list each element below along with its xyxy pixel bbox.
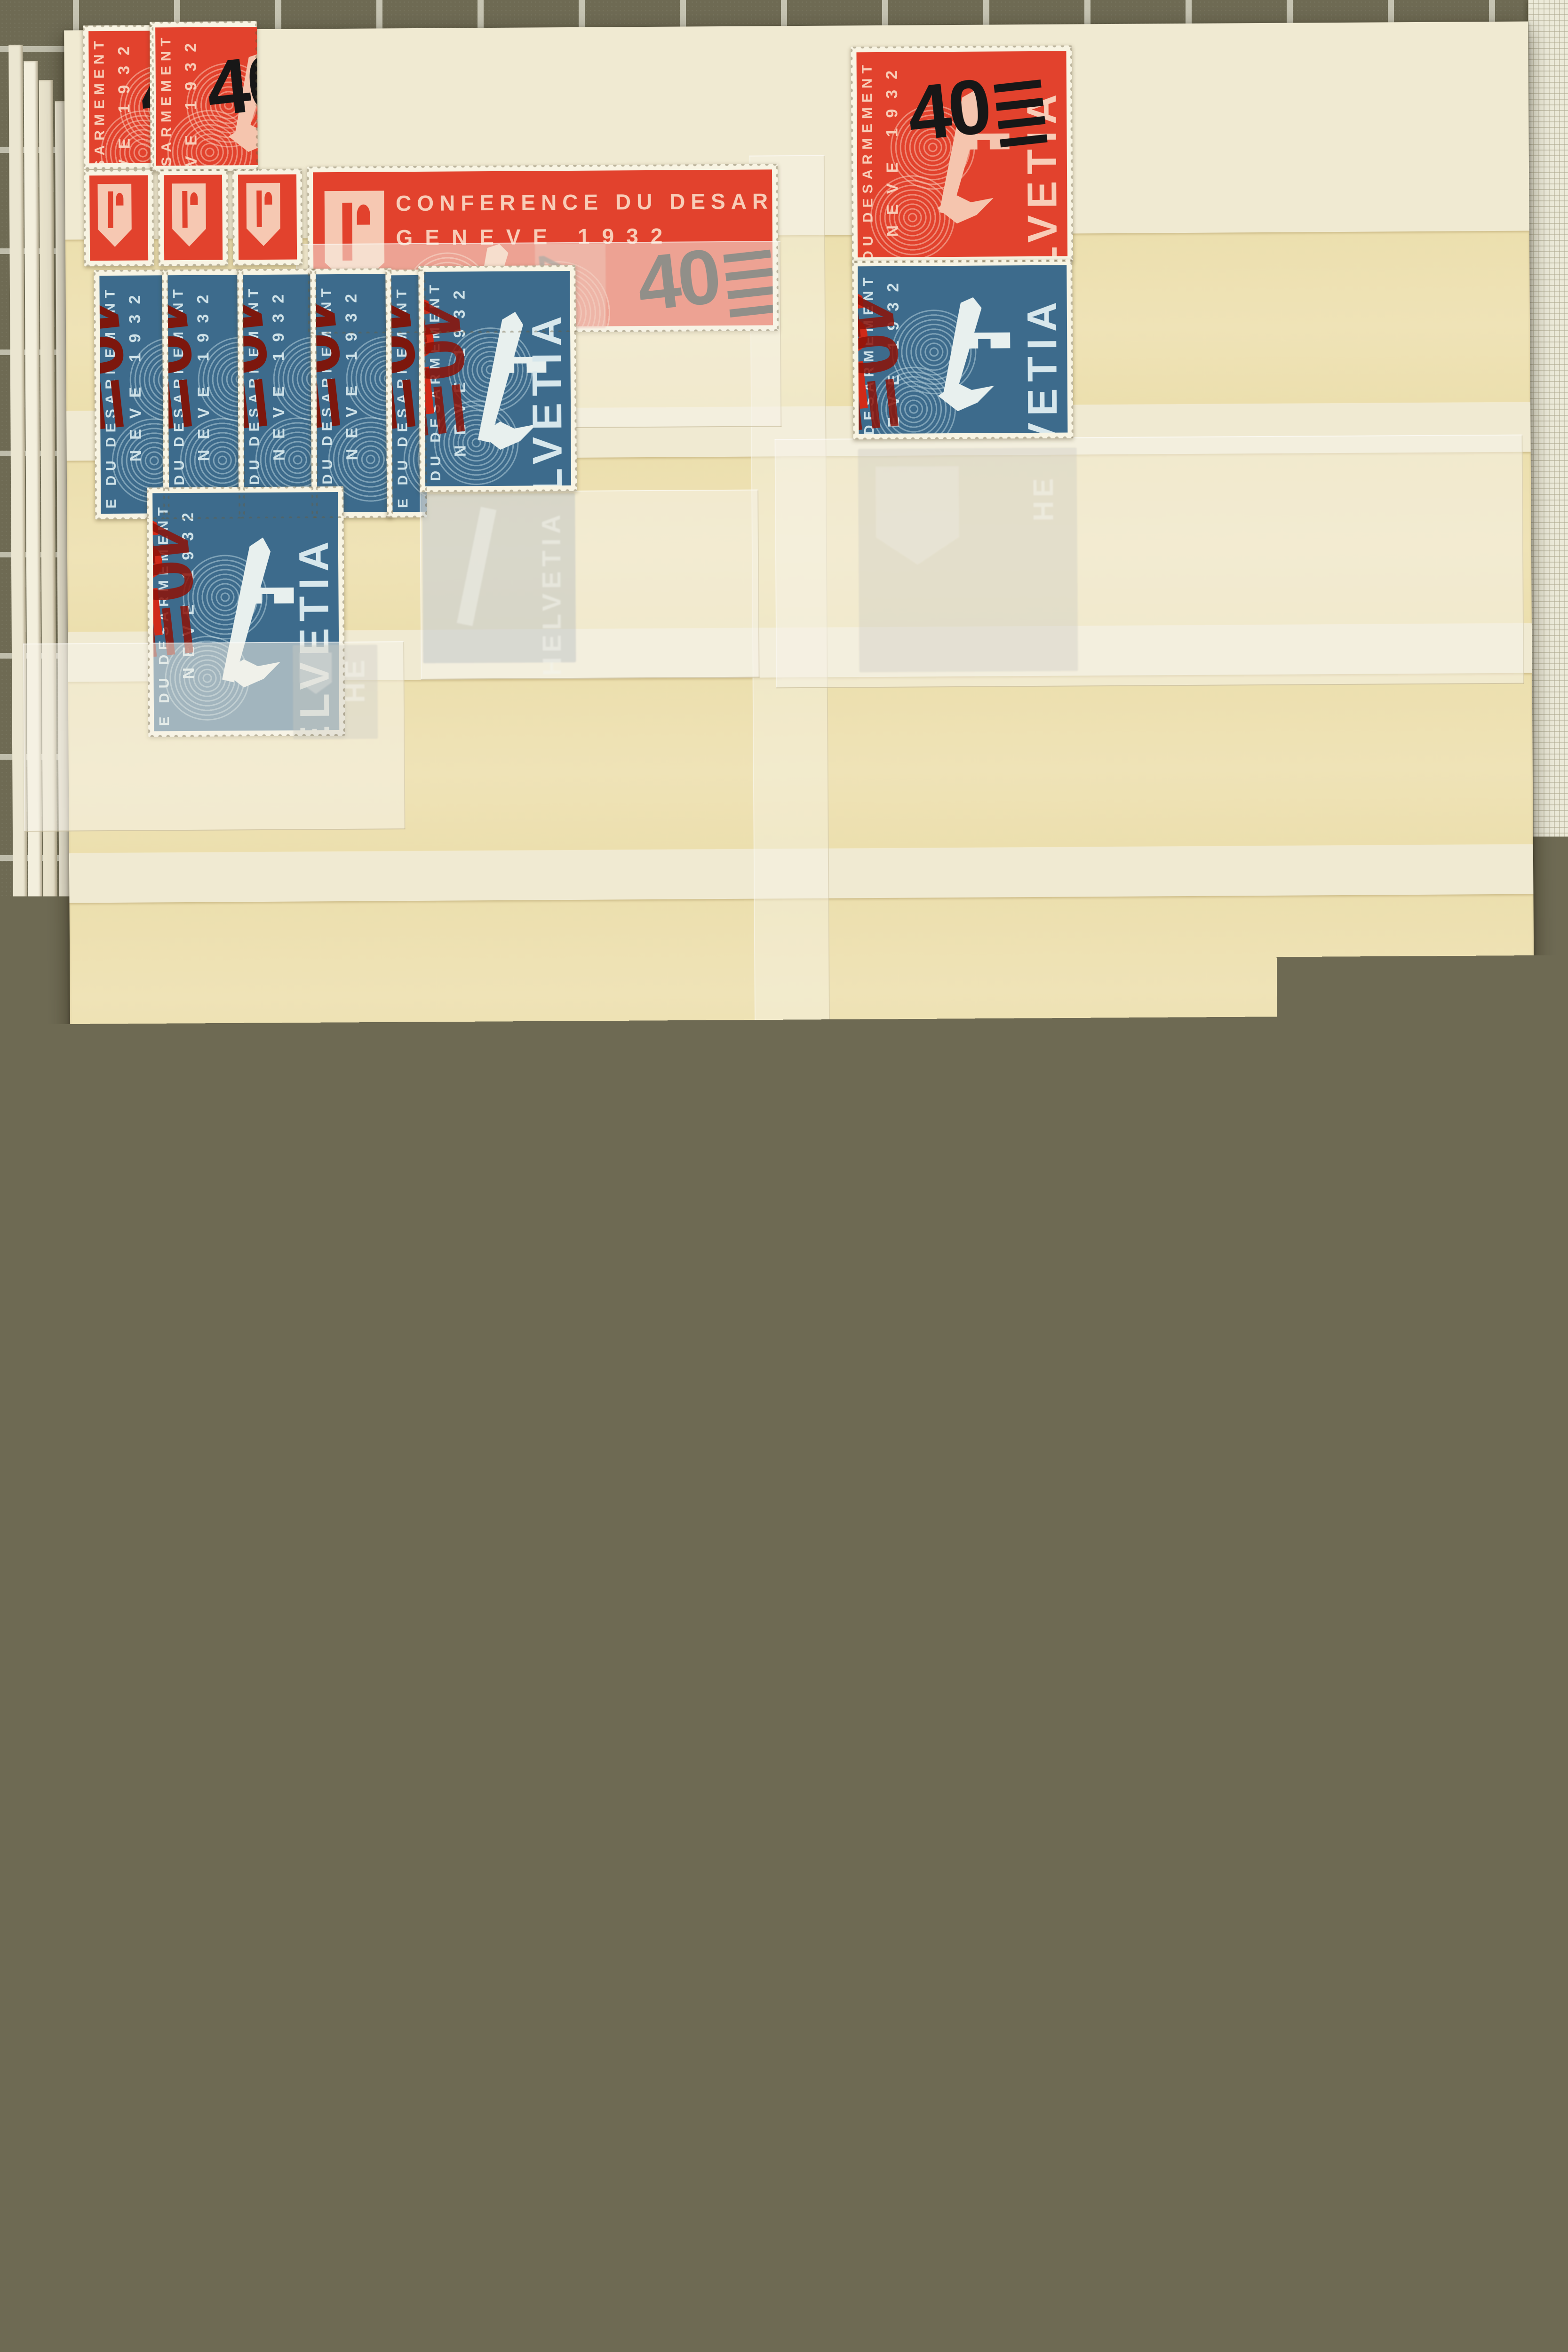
geneva-shield-icon — [247, 183, 281, 246]
perforation-right — [37, 1119, 42, 1227]
peek-stamp-edge — [13, 940, 40, 1055]
overprint-bars-icon — [243, 378, 272, 433]
perforation-top — [169, 1581, 250, 1586]
overprint-40: 40 — [243, 290, 279, 433]
dove-icon — [242, 588, 294, 604]
white-stamp-edge — [19, 1124, 36, 1221]
stamp-text-outer: ENCE DU DESARMEMENT — [158, 33, 175, 166]
album-page: CONFERENCE DU DESARMEMENT GENEVE 1932 40… — [64, 22, 1541, 2166]
perforation-left — [150, 22, 155, 171]
perforation-top — [158, 169, 228, 174]
red-shield-top-2 — [158, 169, 228, 266]
stamp-text-inner: NEVE 1932 — [115, 36, 134, 163]
airmail-right-sliver: HELVETIA — [858, 1180, 933, 1359]
stamp-text-outer: ENCE DU DESARMEMENT — [91, 36, 109, 163]
perforation-left — [83, 25, 88, 169]
perforation-top — [13, 1119, 41, 1123]
red-shield-art — [238, 175, 297, 260]
blue-sliver-4: ENCE DU DESARMEMENT NEVE 1932 HELVETIA40 — [310, 268, 393, 518]
perforation-bottom — [859, 1354, 933, 1359]
red-shield-art — [89, 175, 148, 261]
overprint-10: 65 10 — [476, 1176, 572, 1238]
blue-40-double-upper: ENCE DU DESARMEMENT NEVE 1932 HELVETIA40… — [418, 265, 577, 492]
overprint-40: 40 — [905, 68, 1048, 162]
proaero-bottom-right: 20 1938 75 ★ HELVETIA 22.V.38 — [261, 1827, 451, 2034]
blue-disarmament-art: ENCE DU DESARMEMENT NEVE 1932 HELVETIA40… — [858, 265, 1067, 434]
peeking-stamp-art — [19, 946, 34, 1049]
perforation-top — [162, 269, 243, 274]
perforation-top — [89, 1582, 175, 1587]
icarus-wing-icon — [241, 1154, 302, 1335]
stamp-album-photo: CONFERENCE DU DESARMEMENT GENEVE 1932 40… — [0, 0, 1568, 2352]
overprint-bars-icon — [99, 379, 129, 434]
overprint-40: 40 — [203, 43, 258, 137]
stamp-text-inner: NEVE 1932 — [182, 33, 201, 166]
perforation-left — [232, 169, 237, 265]
overprint-bars-icon — [167, 379, 197, 434]
perforation-top — [83, 1144, 153, 1148]
helvetia-text: HELVETIA — [1021, 295, 1064, 434]
perforation-top — [261, 1827, 449, 1832]
blue-disarmament-art: ENCE DU DESARMEMENT NEVE 1932 HELVETIA40 — [316, 273, 393, 512]
glassine-right-a — [774, 435, 1524, 689]
blue-sliver-2: ENCE DU DESARMEMENT NEVE 1932 HELVETIA40 — [162, 269, 245, 519]
airmail-stamp-art: HELVETIA — [863, 1184, 933, 1353]
perforation-bottom — [159, 261, 228, 266]
icarus-wing-icon — [359, 1153, 426, 1335]
perforation-right — [298, 168, 302, 265]
overprint-40: 40 — [167, 290, 204, 434]
perforation-top — [851, 45, 1072, 51]
perforation-left — [932, 1177, 938, 1402]
perforation-top — [244, 1581, 308, 1586]
perforation-left — [418, 266, 424, 492]
perforation-left — [310, 269, 316, 518]
overprint-40: 40 — [99, 291, 135, 434]
perforation-left — [13, 1119, 18, 1227]
overprint-40: 40 — [316, 289, 352, 433]
red-disarmament-art: ENCE DU DESARMEMENT NEVE 1932 HELVETIA40 — [88, 30, 154, 163]
icarus-wing-icon — [93, 1155, 154, 1336]
geneva-shield-icon — [172, 183, 207, 246]
perforation-top — [150, 21, 257, 26]
selvage-sheet-3 — [116, 1727, 322, 1816]
original-value-65: 65 — [1029, 1218, 1084, 1271]
perforation-top — [94, 270, 168, 274]
blue-sliver-1: ENCE DU DESARMEMENT NEVE 1932 HELVETIA40 — [94, 270, 169, 519]
proaero-75-wide: 20 1938 75 PRO AERO” HELVETIA VERS — [302, 1586, 494, 1822]
perforation-right — [543, 1398, 548, 1454]
proaero-bottom-left: 75 HELVETIA PRO AERO” — [131, 1832, 263, 2033]
glassine-right-b — [780, 1373, 1530, 1587]
overprint-40: 40 — [152, 516, 205, 660]
perforation-top — [932, 1176, 1143, 1182]
perforation-top — [232, 168, 302, 173]
original-value-65: 65 — [471, 1202, 526, 1255]
perforation-top — [858, 1180, 932, 1184]
stamp-text-inner: NEVE 1932 — [883, 60, 902, 237]
dove-icon — [958, 333, 1010, 349]
perforation-top — [302, 1586, 493, 1591]
value-75: 75 — [143, 1847, 187, 1889]
overprint-bars-icon — [540, 1183, 572, 1238]
perforation-left — [158, 169, 163, 266]
perforation-left — [131, 1833, 136, 2033]
perforation-right — [149, 169, 154, 266]
perforation-left — [385, 270, 391, 517]
blue-disarmament-art: ENCE DU DESARMEMENT NEVE 1932 HELVETIA40… — [424, 271, 571, 486]
perforation-top — [852, 259, 1072, 265]
pro-aero-75-art: 20 1938 75 PRO AERO” HELVETIA VERS — [308, 1592, 494, 1823]
overprint-40: 40 — [424, 295, 477, 438]
perforation-top — [83, 25, 153, 30]
perforation-bottom — [84, 164, 154, 169]
red-shield-art — [164, 175, 223, 261]
perforation-left — [852, 261, 857, 439]
perforation-top — [293, 1143, 357, 1147]
selvage-sheet-1 — [30, 1311, 422, 1403]
perforation-left — [851, 47, 856, 263]
icarus-wing-icon — [156, 1154, 239, 1336]
perforation-right — [1067, 45, 1073, 262]
red-shield-top-1 — [84, 169, 154, 266]
overprint-bars-icon — [993, 74, 1048, 152]
geneva-shield-icon — [98, 184, 132, 247]
perforation-top — [13, 940, 40, 944]
red-disarmament-art: ENCE DU DESARMEMENT NEVE 1932 HELVETIA40 — [155, 26, 258, 166]
overprint-40: 40 — [858, 290, 910, 433]
blue-sliver-3: ENCE DU DESARMEMENT NEVE 1932 HELVETIA40 — [237, 269, 318, 518]
red-disarmament-art: ENCE DU DESARMEMENT NEVE 1932 HELVETIA40 — [856, 51, 1067, 258]
cancel-bars-icon — [274, 1598, 306, 1669]
helvetia-chain: HELVETIA — [462, 1625, 493, 1817]
perforation-top — [84, 169, 153, 174]
blue-disarmament-art: ENCE DU DESARMEMENT NEVE 1932 HELVETIA40 — [243, 274, 318, 513]
glassine-bottom — [32, 2018, 766, 2177]
cancel-bars-icon — [245, 1848, 262, 1919]
perforation-left — [84, 170, 88, 266]
cancel-bars-icon — [199, 1598, 231, 1669]
overprint-bars-icon — [858, 378, 904, 433]
perforation-top — [418, 265, 575, 270]
blue-40-right: ENCE DU DESARMEMENT NEVE 1932 HELVETIA40… — [852, 259, 1073, 439]
perforation-left — [13, 940, 18, 1055]
perforation-top — [231, 1143, 300, 1148]
perforation-left — [94, 270, 99, 519]
perforation-top — [147, 486, 343, 492]
blue-disarmament-art: ENCE DU DESARMEMENT NEVE 1932 HELVETIA40 — [167, 274, 245, 513]
perforation-left — [261, 1828, 267, 2034]
perforation-left — [237, 269, 243, 518]
perforation-left — [89, 1582, 95, 1785]
star-mark: ★ — [427, 1865, 446, 1889]
perforation-top — [237, 269, 316, 273]
perforation-top — [310, 268, 391, 273]
blue-disarmament-art: ENCE DU DESARMEMENT NEVE 1932 HELVETIA40 — [99, 275, 169, 514]
conference-line1: CONFERENCE DU DESARMEMENT — [396, 187, 773, 216]
overprint-bars-icon — [1098, 1199, 1130, 1254]
postmark-town: WALD — [1178, 1198, 1283, 1243]
selvage-perforation-row — [125, 1802, 314, 1813]
perforation-bottom — [14, 1223, 42, 1227]
red-shield-top-3 — [232, 168, 302, 265]
perforation-top — [146, 1143, 238, 1148]
pro-aero-bottom-art: 20 1938 75 ★ HELVETIA 22.V.38 — [267, 1832, 451, 2034]
stamp-text-outer: ENCE DU DESARMEMENT — [860, 60, 877, 257]
perforation-left — [162, 270, 167, 519]
perforation-right — [35, 940, 40, 1055]
overprint-bars-icon — [424, 383, 470, 438]
airmail-right-full: 65 10 HELVETIA — [932, 1176, 1144, 1403]
red-stamp-40: ENCE DU DESARMEMENT NEVE 1932 HELVETIA40 — [150, 21, 258, 171]
glassine-left-b — [23, 641, 405, 832]
value-75: 75 — [406, 1597, 458, 1651]
circle-pattern — [870, 175, 955, 258]
helvetia-text: HELVETIA — [526, 310, 569, 486]
red-stamp-sliver: ENCE DU DESARMEMENT NEVE 1932 HELVETIA40 — [83, 25, 154, 169]
cancel-bars-icon — [119, 1599, 151, 1669]
perforation-top — [350, 1142, 425, 1147]
helvetia-chain: HELVETIA — [167, 1899, 198, 2029]
perforation-bottom — [233, 261, 302, 265]
pro-aero-bottom-art: 75 HELVETIA PRO AERO” — [136, 1838, 263, 2033]
glassine-left-a — [420, 490, 759, 680]
icarus-wing-icon — [868, 1190, 933, 1338]
helvetia-text: HELVETIA — [882, 1335, 933, 1350]
overprint-bars-icon — [316, 378, 345, 433]
peek-white-edge — [13, 1119, 42, 1227]
overprint-bars-icon — [391, 379, 421, 434]
overprint-10: 65 10 — [1034, 1192, 1130, 1254]
perforation-right — [223, 169, 228, 265]
perforation-bottom — [14, 1051, 40, 1055]
perforation-bottom — [84, 262, 154, 266]
airmail-stamp-art: 65 10 HELVETIA — [938, 1182, 1138, 1397]
red-40-right: ENCE DU DESARMEMENT NEVE 1932 HELVETIA40 — [851, 45, 1073, 263]
perforation-top — [419, 1160, 583, 1165]
perforation-top — [131, 1832, 261, 1837]
perforation-left — [858, 1180, 863, 1359]
